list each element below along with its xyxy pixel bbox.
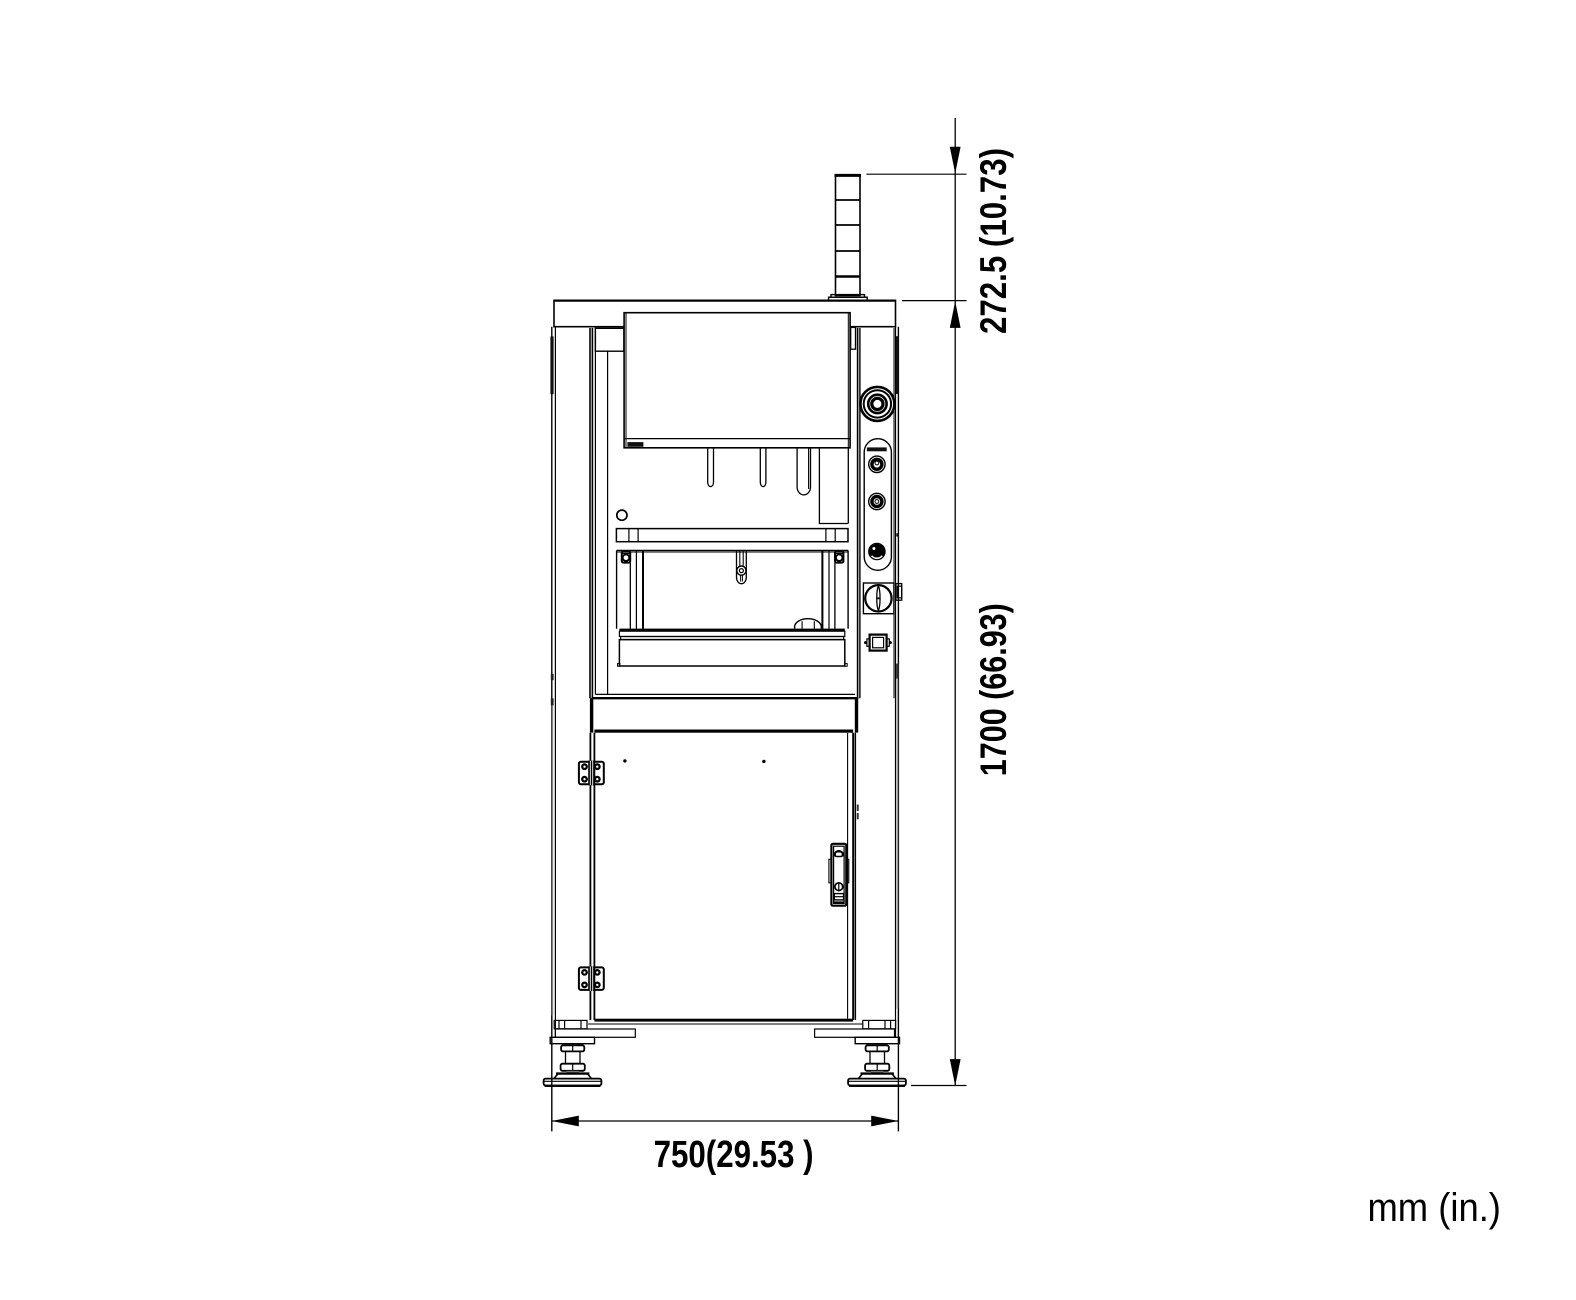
- svg-text:750(29.53 ): 750(29.53 ): [654, 1134, 814, 1176]
- svg-text:mm (in.): mm (in.): [1367, 1186, 1501, 1230]
- svg-text:272.5 (10.73): 272.5 (10.73): [973, 148, 1014, 334]
- svg-text:1700 (66.93): 1700 (66.93): [973, 603, 1014, 776]
